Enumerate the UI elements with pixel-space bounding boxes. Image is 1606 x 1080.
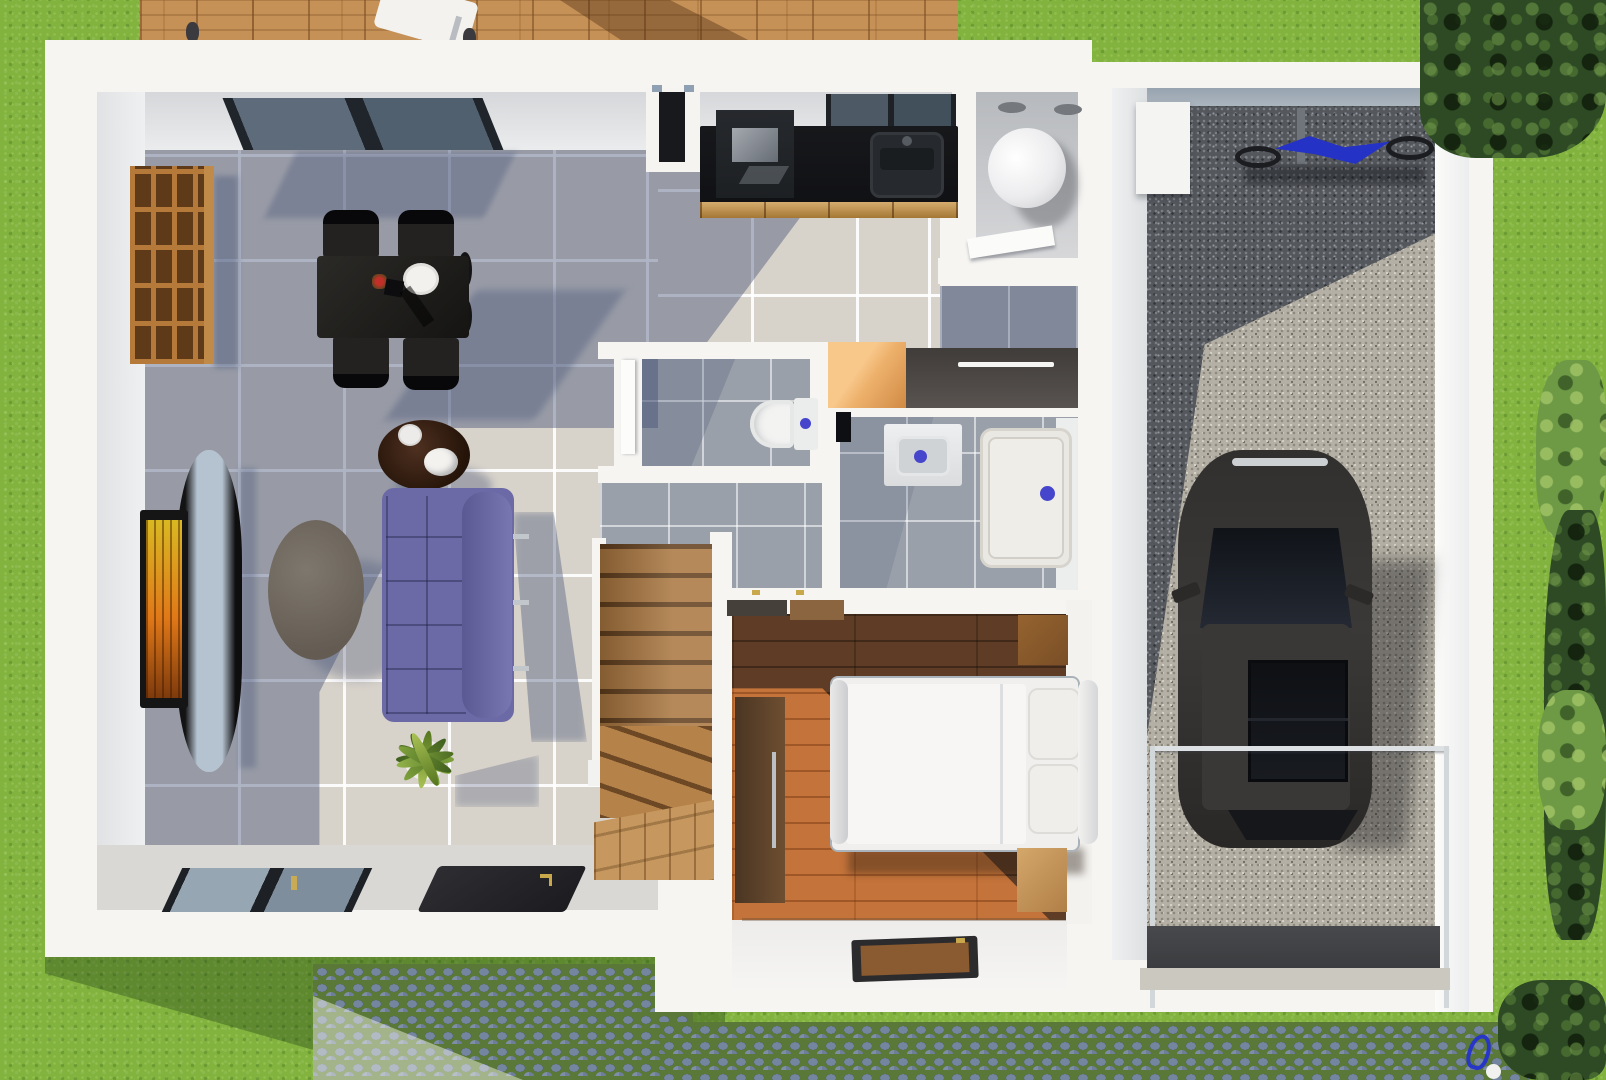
tv-screen <box>146 520 182 698</box>
car-sunroof <box>1248 660 1348 782</box>
hall-wardrobe-handle <box>958 362 1054 367</box>
toilet-bowl <box>750 400 794 448</box>
garage-west-face <box>1112 88 1147 960</box>
tv-console-shadow <box>240 468 256 768</box>
bike-wheel-right <box>1386 136 1434 160</box>
nightstand-north <box>1018 615 1068 665</box>
door-hinge-2 <box>796 590 804 595</box>
stairs-upper-flight <box>600 544 712 740</box>
techroom-south-wall <box>938 258 1092 284</box>
bedroom-wardrobe <box>735 697 785 903</box>
kitchen-partition-slot <box>659 92 685 162</box>
cooktop <box>732 128 778 162</box>
bike-hook <box>1297 108 1305 164</box>
partition-cap-2 <box>684 85 694 92</box>
path-white-ball <box>1486 1064 1501 1079</box>
living-dark-mat <box>417 866 586 912</box>
bookshelf-shadow <box>214 176 238 368</box>
glass-door-handle <box>291 876 297 890</box>
car-sunroof-divider <box>1248 718 1348 721</box>
coffee-table <box>268 520 364 660</box>
bookshelf-edge <box>204 166 214 364</box>
hall-cabinet-orange <box>828 342 906 408</box>
garage-door-panel <box>1147 926 1440 972</box>
nightstand-south <box>1017 848 1067 912</box>
cobble-path-south <box>660 1022 1530 1080</box>
dining-chair-3 <box>333 336 389 388</box>
techroom-vent-1 <box>998 102 1026 113</box>
cabinet-fronts <box>700 202 958 218</box>
dining-chair-1 <box>323 210 379 258</box>
bike-shadow <box>1245 166 1425 184</box>
entry-edge-line <box>742 918 1066 921</box>
bed-mattress <box>846 684 1026 844</box>
bike-wheel-left <box>1235 146 1281 168</box>
partition-cap-1 <box>652 85 662 92</box>
bed-headboard-roll <box>1078 680 1098 844</box>
entry-doormat-center <box>861 942 970 976</box>
shower-drain <box>1040 486 1055 501</box>
toilet-flush-button <box>800 418 811 429</box>
floorplan-3d-render <box>0 0 1606 1080</box>
sofa-leg-1 <box>513 534 529 539</box>
teacup <box>398 424 422 446</box>
car-rear-window <box>1228 810 1358 840</box>
skylight-glass <box>222 98 503 150</box>
sofa-backrest <box>462 492 512 718</box>
tree-top-right <box>1420 0 1606 158</box>
garage-threshold <box>1140 968 1450 990</box>
corridor-shade <box>940 286 1078 352</box>
dining-chair-2 <box>398 210 454 258</box>
car-front-strip <box>1232 458 1328 466</box>
bed-pillow-2 <box>1028 764 1080 834</box>
hall-wardrobe-dark <box>906 348 1078 408</box>
bed-foot-roll <box>830 680 848 844</box>
faucet <box>902 136 912 146</box>
sofa-leg-3 <box>513 666 529 671</box>
dark-mat-bracket-2 <box>549 874 552 886</box>
bathroom-door-gap <box>836 412 851 442</box>
techroom-vent-2 <box>1054 104 1082 115</box>
bedroom-wardrobe-handle <box>772 752 776 848</box>
bedroom-dark-shelf <box>727 600 787 616</box>
sofa-seat-tufting <box>386 496 466 714</box>
bed-pillow-1 <box>1028 688 1080 760</box>
garage-white-box <box>1136 102 1190 194</box>
boiler-cylinder <box>988 128 1066 208</box>
sink-basin <box>880 148 934 170</box>
bookshelf <box>130 166 214 364</box>
garage-glass-rail-top <box>1150 746 1448 751</box>
duvet-fold-line <box>1000 684 1003 844</box>
door-hinge-1 <box>752 590 760 595</box>
bath-sink-drain <box>914 450 927 463</box>
bush-bottom-right <box>1498 980 1606 1080</box>
deck-bollard-light-1 <box>186 22 199 42</box>
kettle <box>424 448 458 476</box>
dining-chair-4 <box>403 338 459 390</box>
wc-south-wall <box>598 466 828 483</box>
garage-east-face <box>1435 110 1469 1012</box>
living-sliding-glass-door <box>162 868 373 912</box>
car-windshield <box>1200 528 1352 628</box>
skylight-floor-shadow <box>264 152 516 218</box>
wc-door-leaf <box>621 360 635 454</box>
bedroom-wood-shelf <box>790 600 844 620</box>
sofa-leg-2 <box>513 600 529 605</box>
dining-table <box>317 256 469 338</box>
entry-doormat-latch <box>956 938 965 943</box>
bush-right-light-patch <box>1538 690 1606 830</box>
